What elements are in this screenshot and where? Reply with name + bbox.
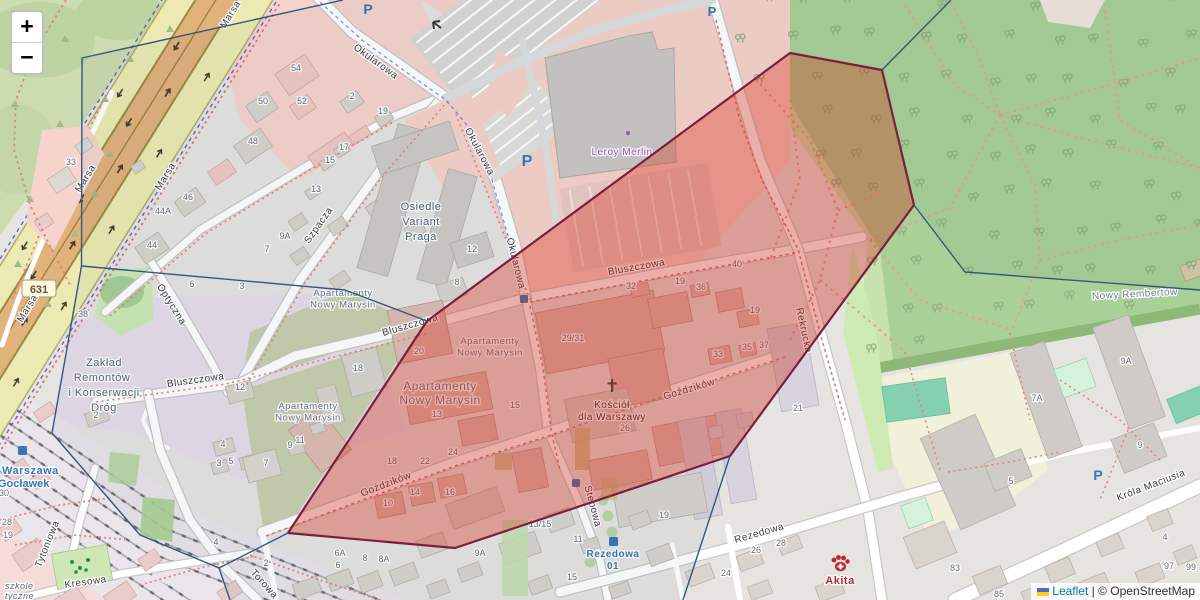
svg-text:21: 21 xyxy=(793,403,803,413)
svg-text:28: 28 xyxy=(2,517,12,527)
svg-text:P: P xyxy=(1093,467,1102,483)
svg-text:99: 99 xyxy=(1186,562,1196,572)
svg-text:5: 5 xyxy=(1008,476,1013,486)
svg-text:26: 26 xyxy=(751,545,761,555)
svg-text:tyczne: tyczne xyxy=(5,591,34,600)
svg-text:30: 30 xyxy=(0,488,9,498)
svg-text:Akita: Akita xyxy=(825,575,855,587)
svg-text:85: 85 xyxy=(994,589,1004,599)
svg-text:4: 4 xyxy=(1162,532,1167,542)
svg-text:Warszawa: Warszawa xyxy=(2,465,59,477)
svg-text:7A: 7A xyxy=(1031,393,1042,403)
svg-text:97: 97 xyxy=(1164,561,1174,571)
svg-text:19: 19 xyxy=(3,530,13,540)
svg-text:szkole: szkole xyxy=(5,581,34,591)
svg-text:28: 28 xyxy=(776,538,786,548)
svg-text:9A: 9A xyxy=(1120,356,1131,366)
svg-text:24: 24 xyxy=(721,568,731,578)
svg-text:33: 33 xyxy=(66,157,76,167)
svg-text:9: 9 xyxy=(1137,440,1142,450)
svg-text:83: 83 xyxy=(950,563,960,573)
